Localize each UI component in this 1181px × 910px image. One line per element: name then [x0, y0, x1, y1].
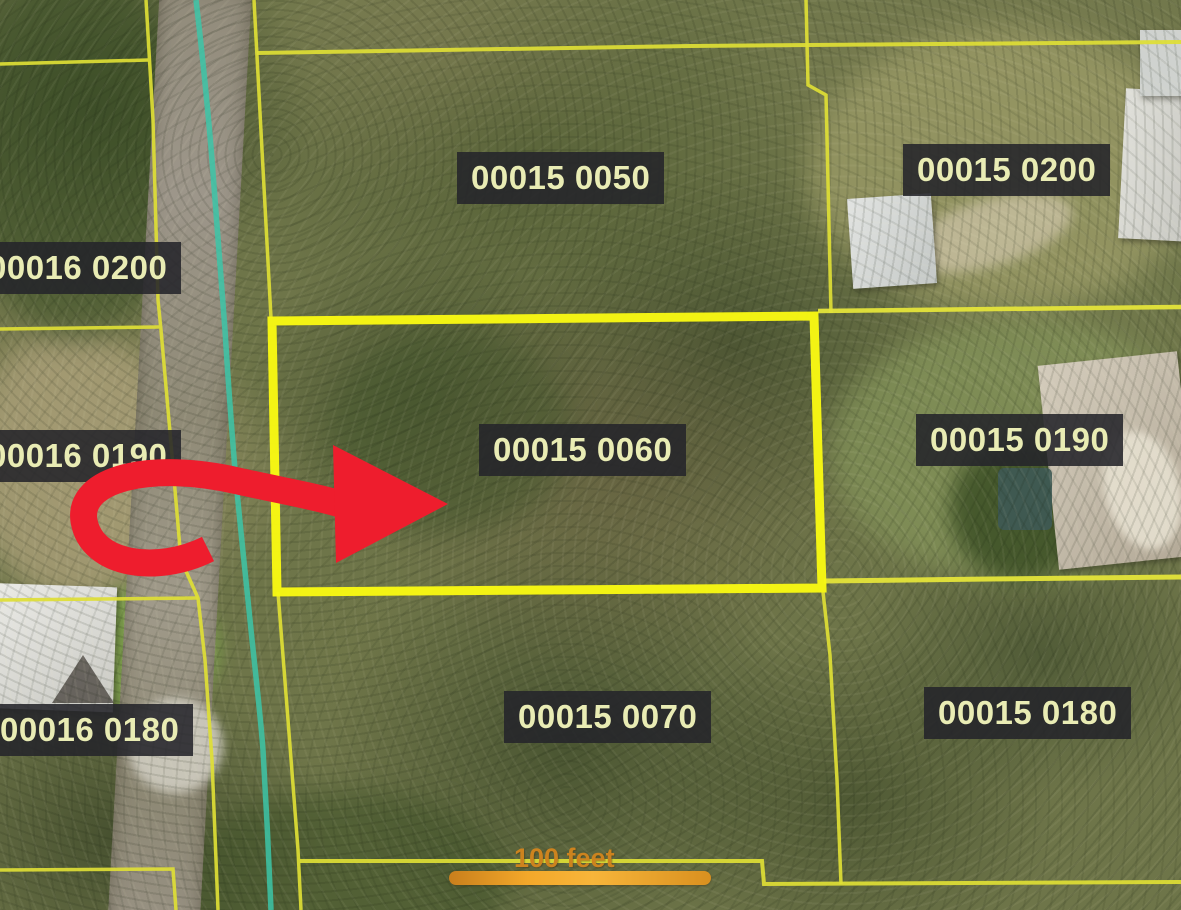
- arrow-head-icon: [333, 445, 448, 563]
- parcel-map-canvas[interactable]: 00016 0200 00015 0050 00015 0200 00016 0…: [0, 0, 1181, 910]
- annotation-arrow-layer: [0, 0, 1181, 910]
- arrow-tail: [84, 473, 340, 563]
- scale-bar: [449, 871, 711, 885]
- scale-bar-label: 100 feet: [514, 843, 615, 874]
